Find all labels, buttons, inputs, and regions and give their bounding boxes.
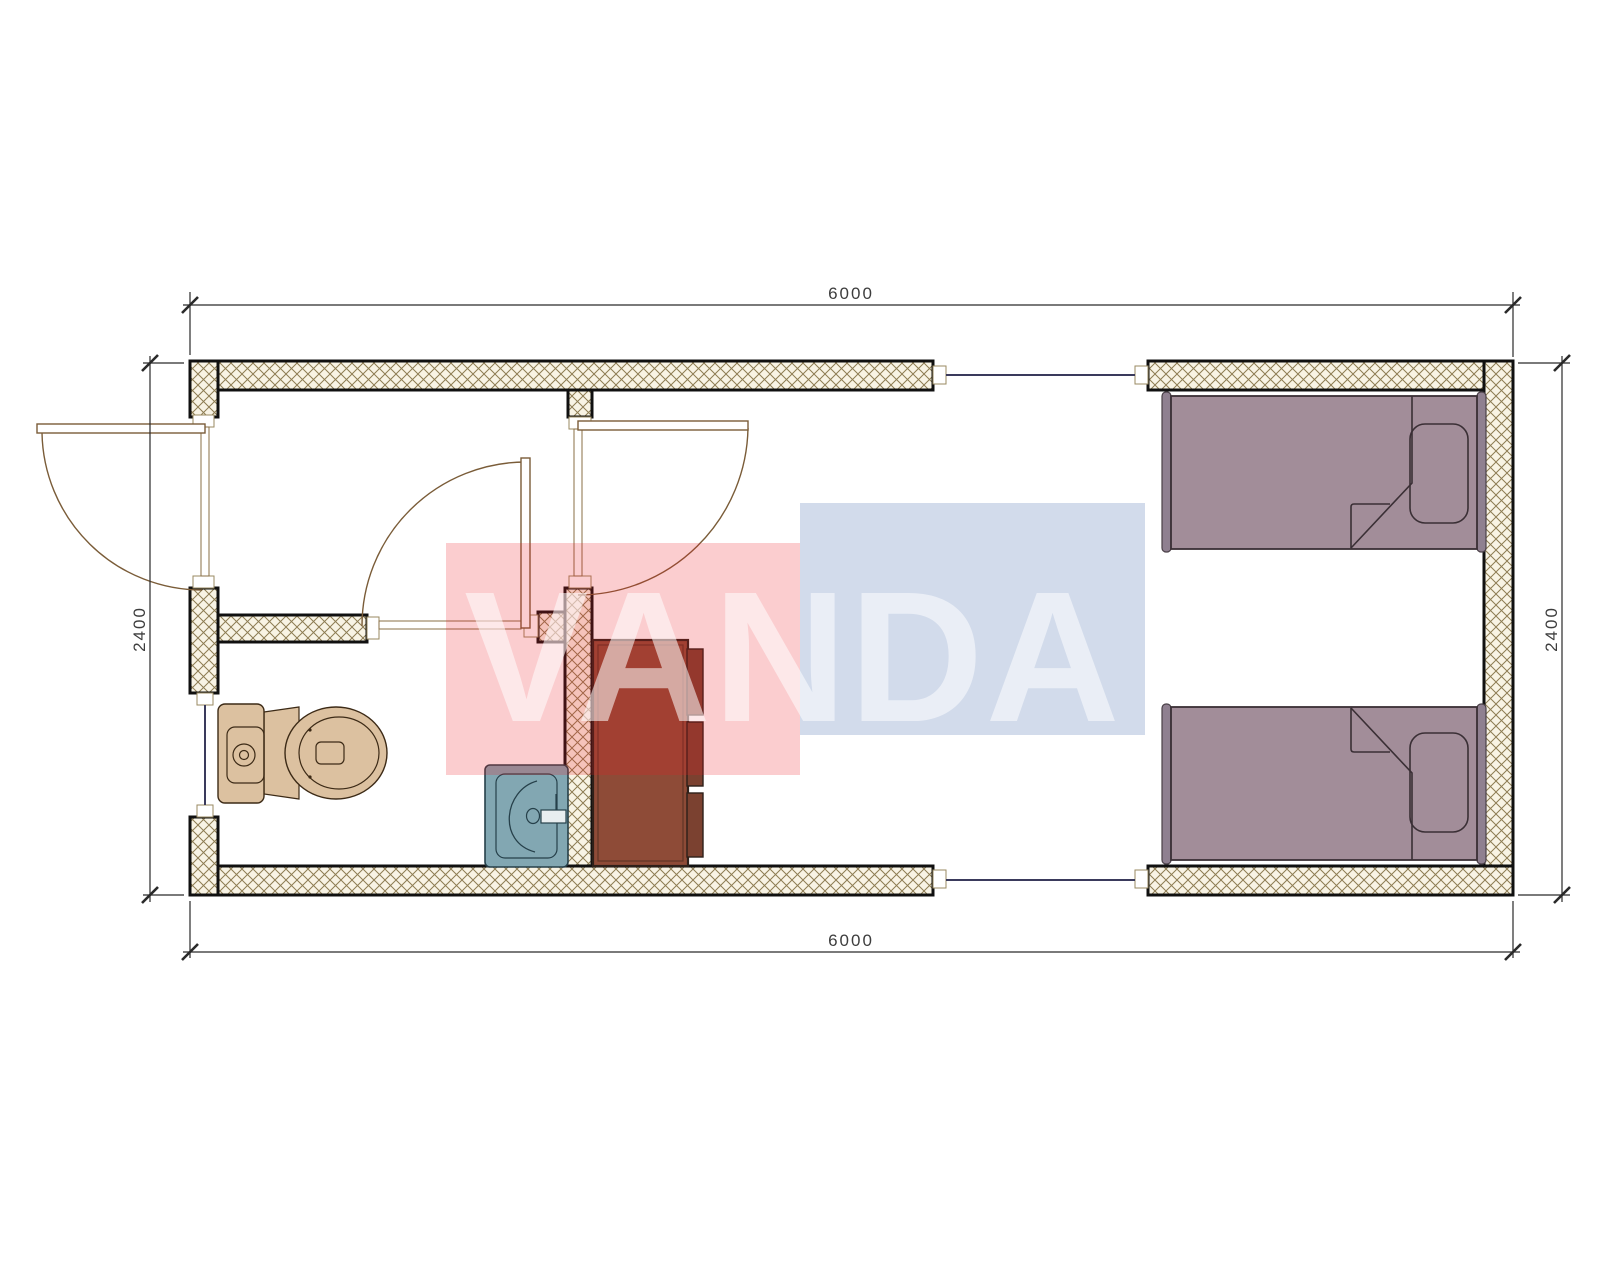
- jamb: [193, 576, 214, 588]
- wall-bottom-left: [190, 866, 933, 895]
- bed-bottom: [1162, 704, 1486, 864]
- wall-bottom-right: [1148, 866, 1513, 895]
- toilet: [218, 704, 387, 803]
- jamb: [933, 366, 946, 384]
- dimension-label-right: 2400: [1542, 606, 1561, 652]
- wall-wc-stub: [218, 615, 367, 642]
- watermark: VANDA: [446, 503, 1145, 775]
- wall-top-right: [1148, 361, 1513, 390]
- jamb: [1135, 870, 1148, 888]
- bed-post: [1162, 392, 1171, 552]
- jamb: [197, 805, 213, 817]
- toilet-bowl: [285, 707, 387, 799]
- bed-pillow: [1410, 424, 1468, 523]
- wall-left-top-pier: [190, 361, 218, 417]
- floor-plan-page: 6000 6000 2400 2400 VANDA: [0, 0, 1600, 1280]
- jamb: [933, 870, 946, 888]
- jamb: [367, 617, 379, 639]
- bed-post: [1477, 704, 1486, 864]
- dimension-label-top: 6000: [828, 284, 874, 303]
- bed-top: [1162, 392, 1486, 552]
- extension-line: [143, 363, 184, 895]
- wall-left-bottom-pier: [190, 817, 218, 895]
- toilet-bolt: [308, 728, 311, 731]
- watermark-text: VANDA: [464, 554, 1122, 761]
- wall-left-mid-pier: [190, 588, 218, 693]
- bed-post: [1162, 704, 1171, 864]
- door-exterior: [37, 424, 205, 590]
- cabinet-door-panel: [687, 793, 703, 857]
- door-leaf: [37, 424, 205, 433]
- bed-post: [1477, 392, 1486, 552]
- dimension-label-bottom: 6000: [828, 931, 874, 950]
- floor-plan-drawing: 6000 6000 2400 2400 VANDA: [0, 0, 1600, 1280]
- sink: [485, 765, 568, 867]
- wall-top-left: [190, 361, 933, 390]
- sink-faucet: [541, 810, 566, 823]
- toilet-tank: [218, 704, 264, 803]
- door-swing-arc: [42, 433, 202, 590]
- toilet-bolt: [308, 775, 311, 778]
- bed-pillow: [1410, 733, 1468, 832]
- threshold: [201, 427, 209, 576]
- dimension-label-left: 2400: [130, 606, 149, 652]
- wall-partition-top-stub: [568, 390, 592, 417]
- door-leaf: [578, 421, 748, 430]
- jamb: [197, 693, 213, 705]
- wall-right: [1484, 361, 1513, 895]
- jamb: [1135, 366, 1148, 384]
